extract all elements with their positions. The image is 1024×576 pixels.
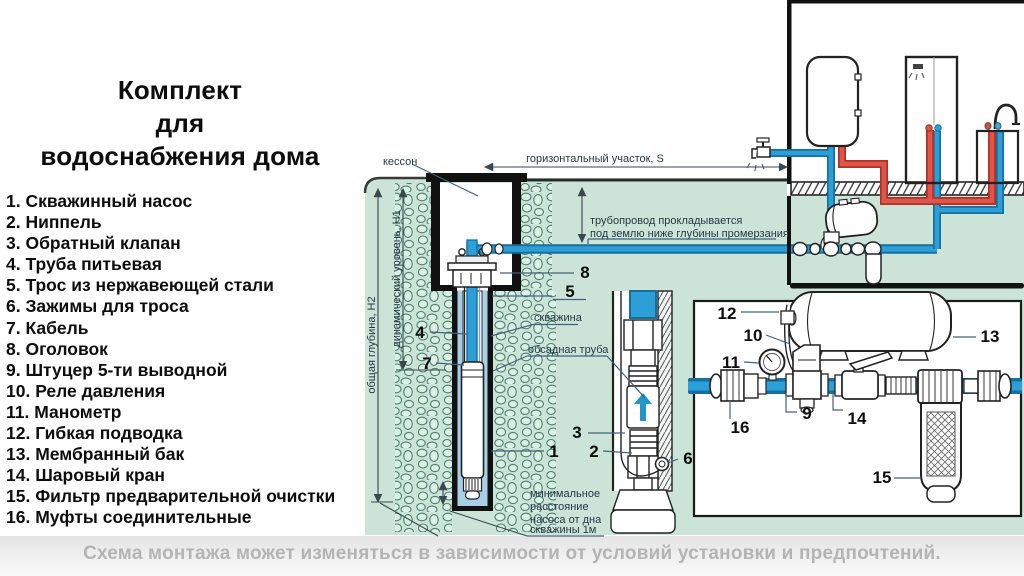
shower-head-icon [913, 64, 923, 69]
callout-16: 16 [731, 418, 750, 437]
dynamic-level-label: динамический уровень, Н1 [391, 210, 403, 347]
basement-wall [787, 196, 791, 285]
ceiling-line [787, 0, 1024, 4]
callout-5: 5 [565, 282, 574, 301]
pump-detail-column [611, 291, 675, 533]
small-filter [866, 254, 881, 284]
min-distance-line1: минимальное [530, 488, 600, 500]
pipe-depth-note-line1: трубопровод прокладывается [590, 215, 742, 227]
caisson-label: кессон [383, 156, 417, 168]
schematic-diagram: кессон горизонтальный участок, S трубопр… [0, 0, 1024, 576]
callout-14: 14 [848, 409, 867, 428]
min-distance-line4: скважины 1м [530, 524, 596, 536]
min-distance-line2: расстояние [530, 501, 589, 513]
cable-clamp-detail [656, 458, 669, 471]
callout-3: 3 [572, 423, 581, 442]
horizontal-section-label: горизонтальный участок, S [526, 153, 664, 165]
threaded-section [886, 377, 916, 394]
pre-filter [918, 370, 962, 502]
callout-12: 12 [718, 304, 737, 323]
callout-10: 10 [744, 326, 763, 345]
outdoor-tap [747, 138, 791, 171]
callout-15: 15 [873, 468, 892, 487]
callout-9: 9 [802, 404, 811, 423]
callout-6: 6 [683, 449, 692, 468]
callout-4: 4 [415, 323, 425, 342]
callout-7: 7 [422, 354, 431, 373]
gravel-right-upper [521, 183, 552, 291]
coupling-left [710, 370, 766, 401]
casing-pipe-label: обсадная труба [528, 344, 609, 356]
borehole-label: скважина [534, 312, 583, 324]
callout-8: 8 [580, 263, 589, 282]
total-depth-label: общая глубина, Н2 [366, 296, 378, 393]
water-heater [807, 57, 861, 146]
callout-11: 11 [722, 353, 740, 372]
pipe-depth-note-line2: под землю ниже глубины промерзания [590, 228, 789, 240]
submersible-pump [462, 362, 484, 499]
page: Комплект для водоснабжения дома 1. Скваж… [0, 0, 1024, 576]
callout-13: 13 [981, 327, 1000, 346]
basement-floor-line [790, 283, 1024, 289]
pressure-switch [793, 345, 820, 374]
callout-2: 2 [589, 442, 598, 461]
equipment-inset [688, 292, 1022, 516]
callout-1: 1 [549, 442, 558, 461]
